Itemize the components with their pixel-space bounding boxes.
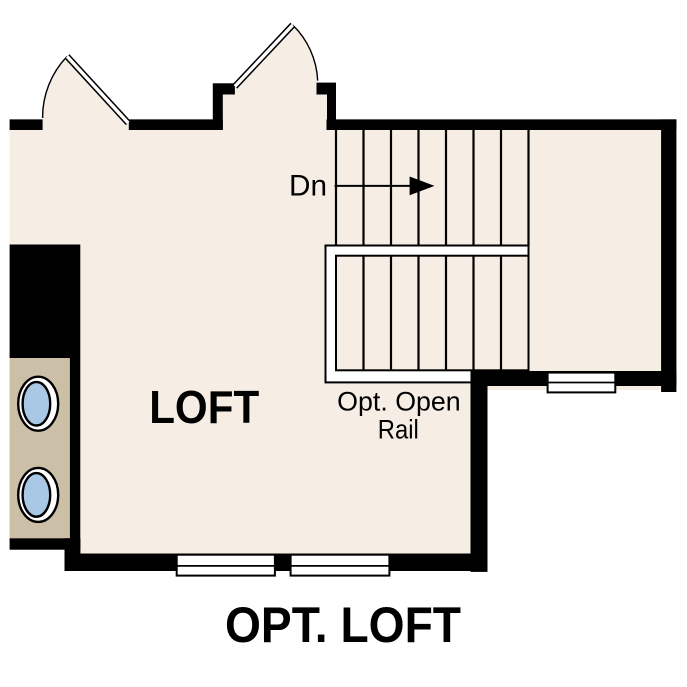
svg-text:Rail: Rail — [378, 415, 419, 445]
svg-text:OPT. LOFT: OPT. LOFT — [225, 596, 461, 653]
svg-text:LOFT: LOFT — [149, 381, 259, 433]
svg-text:Dn: Dn — [289, 170, 327, 203]
svg-text:Opt. Open: Opt. Open — [337, 387, 461, 417]
